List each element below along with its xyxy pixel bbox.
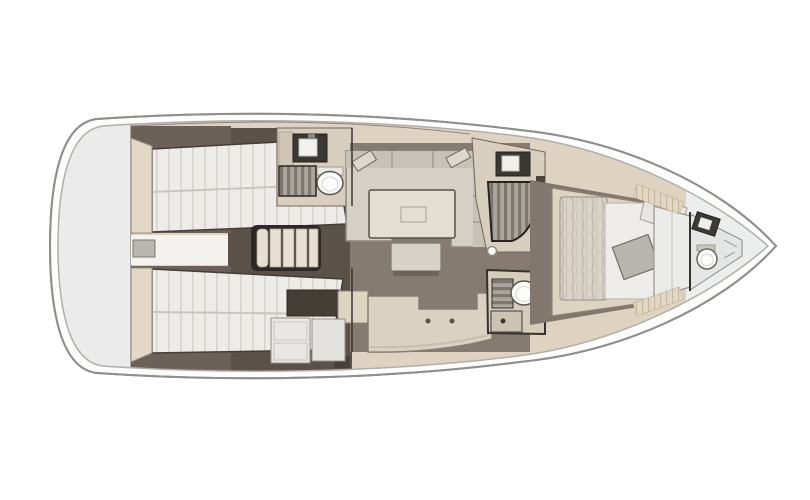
stair-step: [296, 229, 307, 267]
faucet-icon: [308, 134, 315, 139]
shower-grate: [492, 279, 513, 308]
faucet-icon: [501, 319, 506, 324]
sink-basin: [502, 156, 519, 171]
floorplan-canvas: [0, 0, 810, 500]
head-port: [277, 128, 352, 206]
galley-cabinet: [338, 291, 368, 323]
headboard-starboard: [131, 268, 152, 362]
sink-drain-icon: [426, 319, 431, 324]
companionway-stairs: [251, 225, 321, 271]
wardrobe-bulkhead: [654, 206, 690, 298]
stair-step: [283, 229, 294, 267]
shower-grate: [279, 166, 316, 196]
fridge: [312, 319, 345, 361]
stair-step: [309, 229, 318, 267]
salon-table: [369, 190, 455, 238]
stove-counter: [287, 290, 339, 316]
sink-drain-icon: [450, 319, 455, 324]
stair-step: [257, 229, 268, 267]
engine-hatch: [133, 240, 155, 257]
mast-post-icon: [488, 247, 497, 256]
sink-basin: [299, 139, 317, 156]
salon-bench: [391, 243, 441, 271]
headboard-port: [131, 138, 152, 233]
engine-space: [131, 235, 228, 265]
stair-step: [270, 229, 281, 267]
yacht-floorplan: [0, 0, 810, 500]
sink-cabinet: [491, 311, 522, 332]
berth-blanket: [560, 197, 607, 300]
